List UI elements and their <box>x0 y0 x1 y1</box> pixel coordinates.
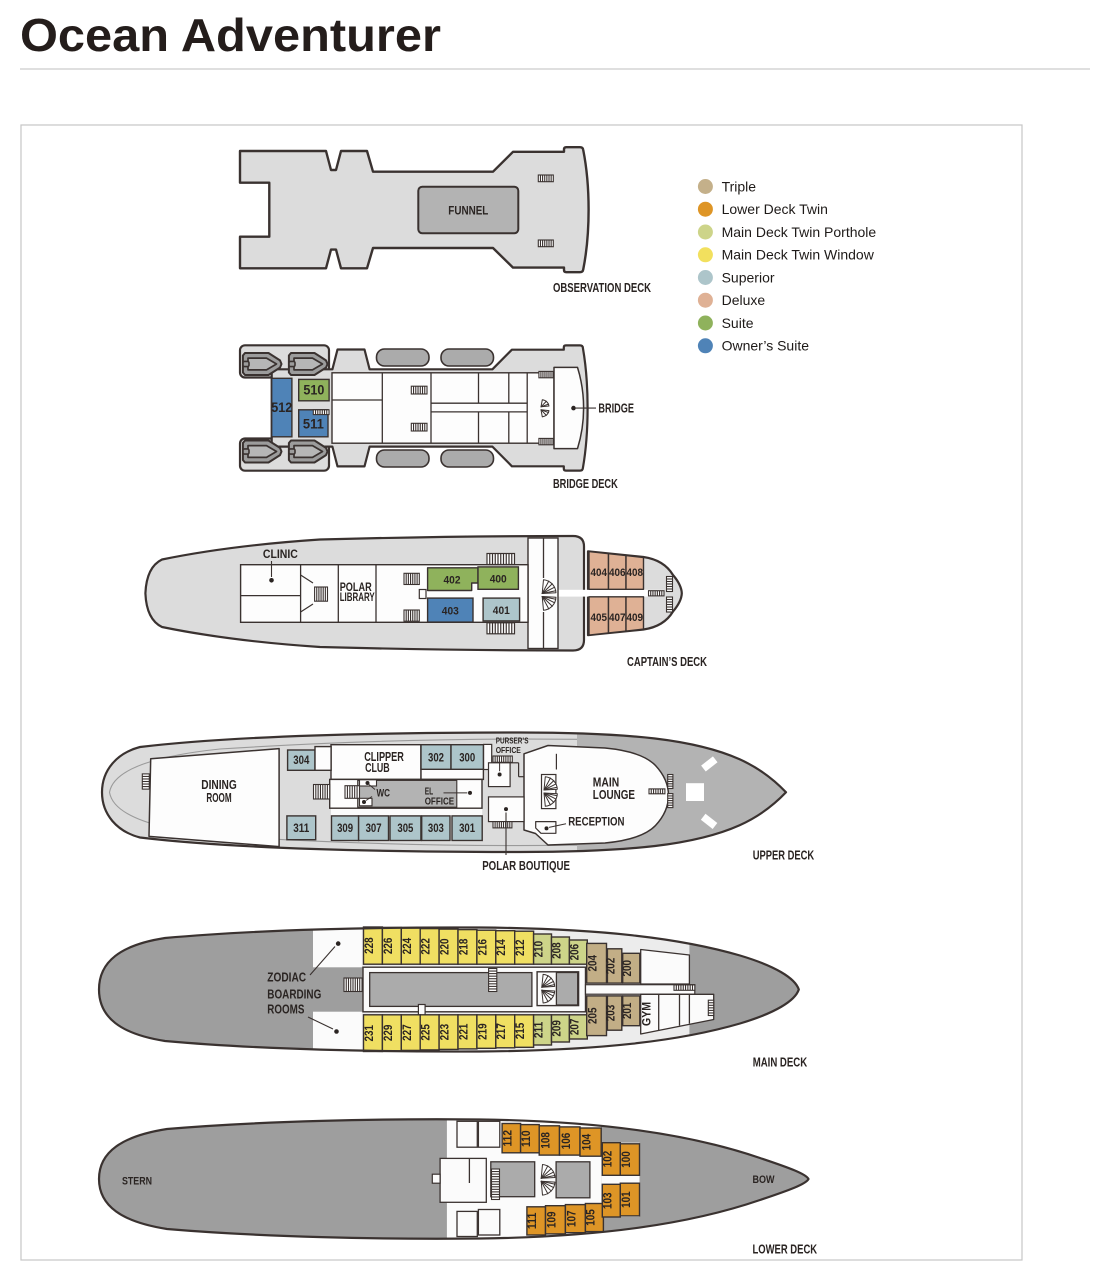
svg-text:402: 402 <box>444 575 461 587</box>
svg-text:225: 225 <box>419 1024 433 1041</box>
svg-text:Triple: Triple <box>722 178 757 194</box>
svg-text:400: 400 <box>490 574 507 586</box>
svg-text:100: 100 <box>619 1151 633 1168</box>
svg-text:OFFICE: OFFICE <box>496 745 521 755</box>
svg-text:Ocean Adventurer: Ocean Adventurer <box>20 9 441 61</box>
svg-text:206: 206 <box>567 944 581 961</box>
svg-text:403: 403 <box>442 606 459 618</box>
svg-text:104: 104 <box>580 1134 594 1151</box>
svg-text:Suite: Suite <box>722 315 754 331</box>
svg-text:FUNNEL: FUNNEL <box>448 204 488 218</box>
svg-text:204: 204 <box>586 955 600 972</box>
svg-text:301: 301 <box>459 823 476 835</box>
svg-text:103: 103 <box>600 1192 614 1209</box>
svg-text:108: 108 <box>538 1132 552 1149</box>
svg-text:CLINIC: CLINIC <box>263 547 298 561</box>
svg-text:200: 200 <box>620 960 634 977</box>
svg-text:409: 409 <box>627 612 644 624</box>
svg-text:205: 205 <box>586 1007 600 1024</box>
svg-text:ZODIAC: ZODIAC <box>267 971 306 985</box>
svg-text:105: 105 <box>583 1209 597 1226</box>
svg-text:BRIDGE: BRIDGE <box>598 402 634 416</box>
svg-text:227: 227 <box>400 1024 414 1041</box>
svg-text:401: 401 <box>493 605 510 617</box>
svg-text:406: 406 <box>609 567 626 579</box>
svg-text:LOWER DECK: LOWER DECK <box>753 1243 818 1257</box>
svg-text:215: 215 <box>513 1022 527 1039</box>
svg-text:224: 224 <box>400 938 414 955</box>
svg-text:WC: WC <box>377 788 391 800</box>
svg-text:CAPTAIN’S DECK: CAPTAIN’S DECK <box>627 655 707 669</box>
svg-text:209: 209 <box>550 1020 564 1037</box>
svg-text:101: 101 <box>619 1191 633 1208</box>
svg-text:408: 408 <box>627 567 644 579</box>
svg-text:RECEPTION: RECEPTION <box>568 815 624 829</box>
svg-text:Deluxe: Deluxe <box>722 292 766 308</box>
svg-text:CLUB: CLUB <box>365 761 390 775</box>
svg-text:Owner’s Suite: Owner’s Suite <box>722 338 810 354</box>
svg-text:511: 511 <box>303 417 324 432</box>
svg-text:219: 219 <box>475 1023 489 1040</box>
svg-text:Main Deck Twin Window: Main Deck Twin Window <box>722 247 875 263</box>
svg-text:217: 217 <box>494 1023 508 1040</box>
svg-text:UPPER DECK: UPPER DECK <box>753 849 815 863</box>
svg-text:220: 220 <box>438 938 452 955</box>
svg-text:LOUNGE: LOUNGE <box>593 788 635 802</box>
svg-text:302: 302 <box>428 753 444 765</box>
svg-text:404: 404 <box>591 567 608 579</box>
svg-text:102: 102 <box>600 1150 614 1167</box>
svg-text:228: 228 <box>362 937 376 954</box>
svg-text:OFFICE: OFFICE <box>425 797 455 808</box>
svg-text:510: 510 <box>303 383 324 398</box>
svg-text:107: 107 <box>564 1210 578 1227</box>
svg-text:OBSERVATION DECK: OBSERVATION DECK <box>553 281 651 295</box>
svg-text:218: 218 <box>456 938 470 955</box>
svg-text:BOW: BOW <box>753 1174 775 1186</box>
svg-text:311: 311 <box>293 823 310 835</box>
svg-text:DINING: DINING <box>201 778 237 792</box>
svg-text:221: 221 <box>456 1023 470 1040</box>
svg-text:231: 231 <box>362 1025 376 1042</box>
svg-text:211: 211 <box>532 1021 546 1038</box>
svg-text:110: 110 <box>519 1130 533 1147</box>
svg-text:203: 203 <box>604 1004 618 1021</box>
svg-text:109: 109 <box>545 1211 559 1228</box>
svg-text:BOARDING: BOARDING <box>267 988 321 1002</box>
svg-text:ROOM: ROOM <box>206 791 231 805</box>
svg-text:LIBRARY: LIBRARY <box>340 592 375 604</box>
svg-text:Lower Deck Twin: Lower Deck Twin <box>722 201 828 217</box>
svg-text:207: 207 <box>567 1018 581 1035</box>
svg-text:202: 202 <box>604 957 618 974</box>
svg-text:106: 106 <box>559 1132 573 1149</box>
svg-text:MAIN DECK: MAIN DECK <box>753 1056 808 1070</box>
svg-text:GYM: GYM <box>639 1002 653 1026</box>
svg-text:226: 226 <box>381 937 395 954</box>
svg-text:STERN: STERN <box>122 1176 152 1188</box>
svg-text:309: 309 <box>337 823 353 835</box>
svg-text:222: 222 <box>419 938 433 955</box>
svg-text:305: 305 <box>397 823 414 835</box>
svg-text:405: 405 <box>591 612 608 624</box>
svg-text:300: 300 <box>459 753 475 765</box>
svg-text:303: 303 <box>428 823 444 835</box>
svg-text:112: 112 <box>500 1130 514 1147</box>
svg-text:208: 208 <box>550 942 564 959</box>
svg-text:212: 212 <box>513 939 527 956</box>
svg-text:407: 407 <box>609 612 626 624</box>
svg-text:BRIDGE DECK: BRIDGE DECK <box>553 477 618 491</box>
svg-text:216: 216 <box>475 939 489 956</box>
svg-text:307: 307 <box>366 823 382 835</box>
svg-text:229: 229 <box>381 1024 395 1041</box>
svg-text:210: 210 <box>532 941 546 958</box>
svg-text:512: 512 <box>271 400 292 415</box>
svg-text:304: 304 <box>293 755 310 767</box>
svg-text:POLAR BOUTIQUE: POLAR BOUTIQUE <box>482 858 570 873</box>
svg-text:201: 201 <box>620 1002 634 1019</box>
svg-text:Superior: Superior <box>722 269 775 285</box>
svg-text:214: 214 <box>494 939 508 956</box>
svg-text:ROOMS: ROOMS <box>267 1003 304 1017</box>
svg-text:Main Deck Twin Porthole: Main Deck Twin Porthole <box>722 224 877 240</box>
svg-text:111: 111 <box>525 1212 539 1229</box>
svg-text:223: 223 <box>438 1024 452 1041</box>
